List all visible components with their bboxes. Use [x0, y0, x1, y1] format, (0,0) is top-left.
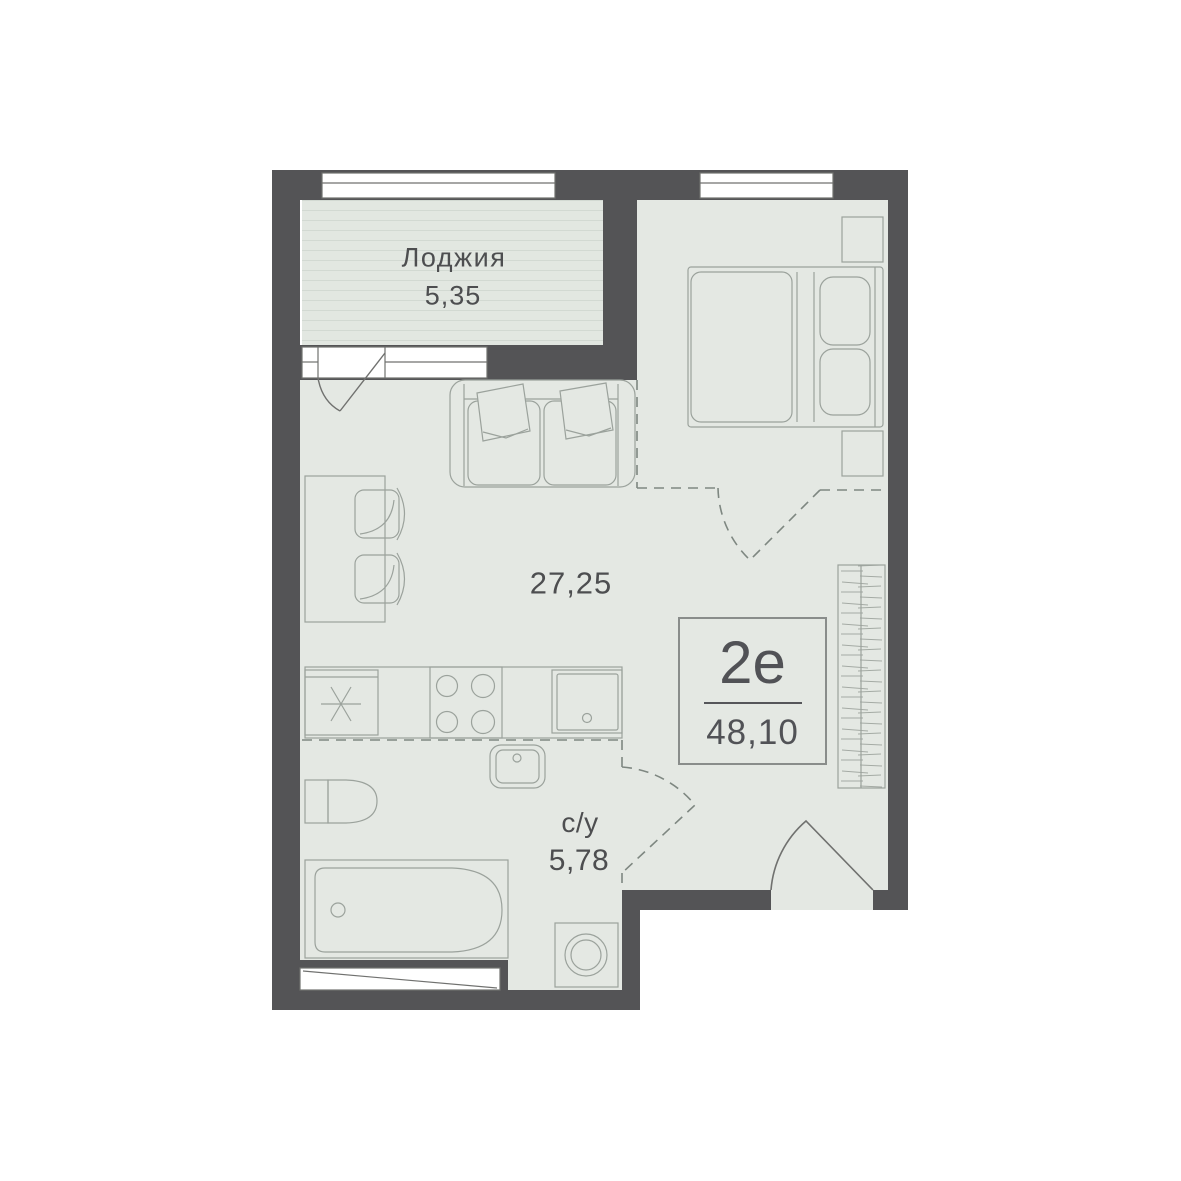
balcony-window-assembly — [302, 347, 487, 378]
loggia-label: Лоджия — [402, 245, 507, 272]
toilet — [305, 780, 377, 823]
unit-card-divider — [704, 702, 802, 704]
bathroom-door-dashed — [622, 767, 695, 873]
bedroom-door-dashed — [718, 488, 820, 560]
bathroom-sink — [490, 745, 545, 788]
unit-total-area: 48,10 — [706, 715, 799, 750]
window-loggia — [322, 173, 555, 198]
window-bedroom — [700, 173, 833, 198]
nightstand-bottom — [842, 431, 883, 476]
sofa — [450, 380, 635, 487]
washing-machine — [555, 923, 618, 987]
bed — [688, 267, 883, 427]
nightstand-top — [842, 217, 883, 262]
bathroom-area: 5,78 — [549, 846, 609, 876]
kitchen-counter — [305, 667, 622, 738]
pillow — [820, 349, 870, 415]
floor-plan-canvas: Лоджия 5,35 27,25 с/у 5,78 2е 48,10 — [0, 0, 1181, 1181]
living-area: 27,25 — [530, 568, 613, 599]
loggia-area: 5,35 — [425, 283, 482, 310]
chair-bottom — [355, 553, 405, 605]
vent-shaft — [300, 968, 500, 990]
stove — [430, 667, 502, 738]
fridge — [305, 670, 378, 735]
entrance-door — [771, 821, 873, 890]
pillow — [820, 277, 870, 345]
kitchen-sink — [552, 670, 622, 733]
wardrobe — [838, 565, 885, 788]
bathroom-label: с/у — [561, 809, 598, 837]
chair-top — [355, 488, 405, 540]
unit-type: 2е — [719, 633, 786, 693]
unit-card: 2е 48,10 — [678, 617, 827, 765]
bathtub — [305, 860, 508, 958]
dining-table — [305, 476, 385, 622]
entrance-opening — [771, 890, 873, 910]
